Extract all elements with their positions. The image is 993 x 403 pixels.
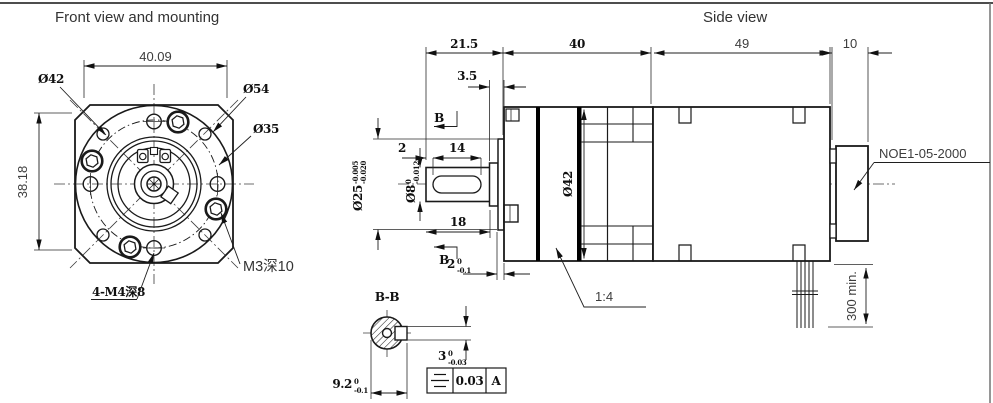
dim-shaft-diameter: Ø8 0 -0.012 bbox=[404, 148, 421, 221]
svg-text:Ø35: Ø35 bbox=[253, 122, 279, 136]
encoder-body bbox=[836, 146, 868, 241]
encoder-label: NOE1-05-2000 bbox=[854, 146, 990, 190]
label-body-diameter: Ø42 bbox=[38, 72, 106, 135]
svg-text:Ø54: Ø54 bbox=[243, 82, 269, 96]
svg-text:Ø42: Ø42 bbox=[561, 171, 575, 197]
feature-control-frame: 0.03 A bbox=[427, 368, 506, 393]
svg-text:18: 18 bbox=[450, 215, 466, 229]
section-key bbox=[395, 327, 407, 341]
fcf-datum: A bbox=[491, 374, 502, 388]
svg-text:40: 40 bbox=[569, 37, 585, 51]
svg-text:Ø8: Ø8 bbox=[404, 185, 418, 203]
svg-text:4-M4深8: 4-M4深8 bbox=[92, 284, 145, 299]
svg-text:2: 2 bbox=[398, 141, 406, 155]
shaft-keyway-slot bbox=[433, 176, 481, 193]
shaft-washer bbox=[490, 163, 499, 206]
side-view: Side view Ø42 bbox=[351, 9, 990, 328]
svg-text:NOE1-05-2000: NOE1-05-2000 bbox=[879, 146, 966, 161]
svg-text:1:4: 1:4 bbox=[595, 289, 613, 304]
section-view-bb: B-B 3 0 -0.03 9.2 0 -0.1 bbox=[332, 290, 506, 399]
svg-text:-0.1: -0.1 bbox=[457, 266, 471, 275]
svg-text:10: 10 bbox=[843, 36, 857, 51]
svg-text:0: 0 bbox=[448, 349, 453, 358]
front-view: Front view and mounting bbox=[15, 9, 294, 300]
dim-flange-height: 38.18 bbox=[15, 113, 72, 250]
svg-text:40.09: 40.09 bbox=[139, 49, 172, 64]
section-bore-hole bbox=[383, 329, 392, 338]
engineering-drawing-canvas: Front view and mounting bbox=[0, 0, 993, 403]
svg-text:300 min.: 300 min. bbox=[844, 271, 859, 321]
svg-text:-0.020: -0.020 bbox=[359, 161, 368, 184]
svg-text:9.2: 9.2 bbox=[332, 377, 352, 391]
side-view-title: Side view bbox=[703, 9, 767, 26]
label-thread-note: M3深10 bbox=[221, 213, 294, 275]
encoder-tab bbox=[830, 224, 836, 238]
svg-text:49: 49 bbox=[735, 36, 749, 51]
svg-text:B: B bbox=[434, 111, 444, 125]
shaft-center-dot bbox=[153, 183, 156, 186]
svg-text:M3深10: M3深10 bbox=[243, 258, 294, 275]
svg-text:0: 0 bbox=[354, 377, 359, 386]
svg-text:Ø42: Ø42 bbox=[38, 72, 64, 86]
svg-text:14: 14 bbox=[449, 141, 465, 155]
svg-text:Ø25: Ø25 bbox=[351, 185, 365, 211]
gearbox-ring-band bbox=[577, 107, 582, 261]
svg-text:2: 2 bbox=[447, 257, 455, 271]
section-mark-b-top: B bbox=[434, 111, 457, 127]
section-title: B-B bbox=[375, 290, 400, 304]
dim-gearbox-length: 40 bbox=[503, 37, 651, 104]
gearbox-ring-band bbox=[536, 107, 540, 261]
svg-text:21.5: 21.5 bbox=[450, 37, 478, 51]
svg-text:-0.03: -0.03 bbox=[448, 358, 467, 367]
svg-text:3: 3 bbox=[438, 349, 446, 363]
motor-wires bbox=[792, 261, 818, 328]
dim-flange-width: 40.09 bbox=[84, 49, 227, 98]
svg-text:38.18: 38.18 bbox=[15, 166, 30, 199]
encoder-tab bbox=[830, 149, 836, 163]
svg-text:3.5: 3.5 bbox=[457, 69, 477, 83]
fcf-tolerance: 0.03 bbox=[456, 374, 484, 388]
svg-text:0: 0 bbox=[457, 257, 462, 266]
dim-motor-length: 49 bbox=[654, 36, 830, 104]
svg-text:-0.012: -0.012 bbox=[412, 161, 421, 184]
dim-shaft-key-height: 9.2 0 -0.1 bbox=[332, 340, 407, 399]
motor-body bbox=[653, 107, 830, 261]
drawing-page: Front view and mounting bbox=[0, 0, 993, 403]
svg-text:-0.1: -0.1 bbox=[354, 386, 368, 395]
dim-cable-length: 300 min. bbox=[828, 265, 873, 328]
label-mount-holes: 4-M4深8 bbox=[91, 253, 154, 300]
retainer-notch bbox=[151, 148, 158, 155]
front-view-title: Front view and mounting bbox=[55, 9, 219, 26]
dim-shaft-extension: 18 bbox=[426, 210, 490, 238]
dim-key-width: 3 0 -0.03 bbox=[407, 306, 471, 367]
